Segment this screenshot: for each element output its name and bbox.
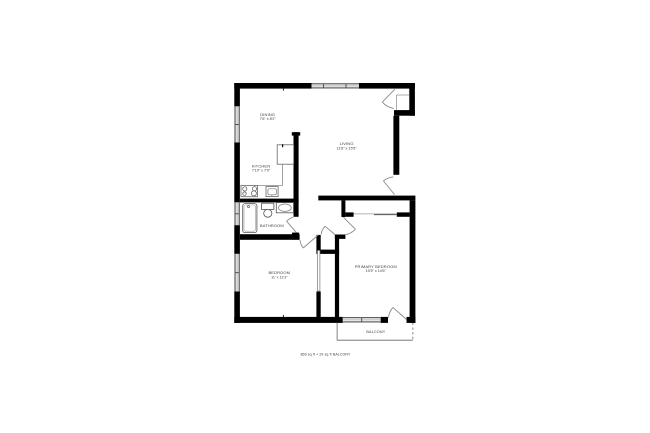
svg-text:7'6" x 8'2": 7'6" x 8'2" bbox=[260, 117, 277, 121]
svg-text:11'8" x 15'5": 11'8" x 15'5" bbox=[337, 146, 358, 150]
svg-text:866 sq ft + 29 sq ft BALCONY: 866 sq ft + 29 sq ft BALCONY bbox=[300, 353, 351, 357]
svg-text:7'10" x 7'9": 7'10" x 7'9" bbox=[252, 169, 271, 173]
svg-text:BEDROOM: BEDROOM bbox=[268, 270, 290, 275]
svg-text:10'5" x 14'6": 10'5" x 14'6" bbox=[366, 269, 387, 273]
svg-text:BALCONY: BALCONY bbox=[366, 330, 385, 334]
svg-text:11' x 11'3": 11' x 11'3" bbox=[271, 275, 288, 279]
svg-text:BATHROOM: BATHROOM bbox=[260, 223, 284, 228]
